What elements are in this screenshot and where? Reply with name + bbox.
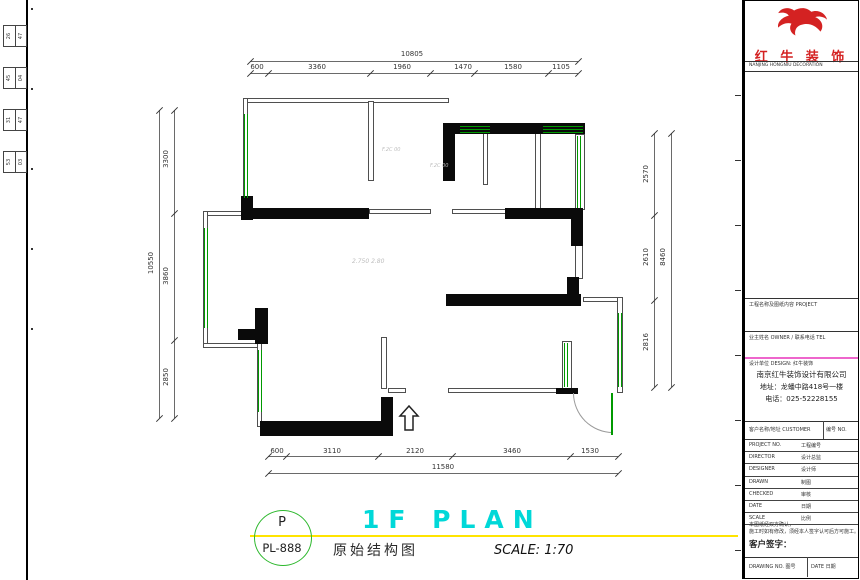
pink-divider-line bbox=[745, 357, 858, 359]
signature-strip-box: 2647 bbox=[3, 25, 27, 47]
window bbox=[543, 124, 583, 133]
dim-tick bbox=[575, 58, 582, 65]
wall bbox=[381, 337, 387, 389]
dim-label: 1530 bbox=[581, 447, 599, 455]
plan-title-cn: 原始结构图 bbox=[333, 540, 418, 560]
wall bbox=[575, 244, 583, 279]
binding-mark bbox=[31, 168, 33, 170]
wall bbox=[452, 209, 507, 214]
fold-mark bbox=[735, 160, 741, 161]
fold-mark bbox=[735, 225, 741, 226]
fold-mark bbox=[735, 485, 741, 486]
dim-label: 1470 bbox=[454, 63, 472, 71]
window bbox=[577, 136, 583, 208]
window bbox=[564, 343, 570, 387]
level-annotation: 2.750 2.80 bbox=[352, 258, 384, 265]
dim-tick bbox=[651, 384, 658, 391]
entrance-arrow-icon bbox=[398, 404, 420, 432]
bearing-wall bbox=[443, 123, 455, 181]
wall bbox=[203, 343, 262, 348]
binding-mark bbox=[31, 8, 33, 10]
title-block: 红 牛 装 饰 NANJING HONGNIU DECORATION 工程名称及… bbox=[742, 0, 859, 579]
wall bbox=[368, 101, 374, 181]
door-swing-arc bbox=[573, 393, 613, 433]
dim-line-left-segments bbox=[174, 110, 175, 418]
customer-signature-label: 客户签字： bbox=[749, 538, 792, 550]
wall bbox=[369, 209, 431, 214]
bearing-wall bbox=[381, 397, 393, 436]
title-block-row: DESIGNER设计师 bbox=[745, 464, 858, 476]
drawing-sheet: 2647450431475303 2.750 2.80 F.2C 00 bbox=[0, 0, 860, 580]
note-line: 本图纸经双方确认， bbox=[749, 521, 794, 528]
wall bbox=[243, 98, 449, 103]
bearing-wall bbox=[446, 294, 581, 306]
fold-mark bbox=[735, 290, 741, 291]
dim-line-top-total bbox=[250, 61, 578, 62]
dim-label: 3360 bbox=[308, 63, 326, 71]
dim-label: 3110 bbox=[323, 447, 341, 455]
dim-label: 2850 bbox=[162, 357, 170, 397]
fold-mark bbox=[735, 550, 741, 551]
bottom-row-left: DRAWING NO. 图号 bbox=[749, 563, 796, 570]
bearing-wall bbox=[260, 421, 388, 436]
dim-tick bbox=[171, 415, 178, 422]
binding-mark bbox=[31, 328, 33, 330]
title-block-row: PROJECT NO.工程编号 bbox=[745, 440, 858, 452]
dim-tick bbox=[575, 70, 582, 77]
dim-label: 1105 bbox=[552, 63, 570, 71]
dim-label: 2816 bbox=[642, 322, 650, 362]
signature-strip-box: 3147 bbox=[3, 109, 27, 131]
window bbox=[204, 228, 210, 328]
dim-line-right-segments bbox=[654, 133, 655, 387]
door-leaf bbox=[611, 393, 613, 435]
signature-strip-box: 4504 bbox=[3, 67, 27, 89]
title-block-row: DATE日期 bbox=[745, 501, 858, 513]
window bbox=[258, 350, 264, 412]
bull-logo-icon bbox=[769, 5, 835, 45]
title-block-row: CHECKED审核 bbox=[745, 489, 858, 501]
dim-label: 1960 bbox=[393, 63, 411, 71]
project-section-label: 工程名称及图纸内容 PROJECT bbox=[749, 301, 817, 308]
dim-line-right-total bbox=[671, 133, 672, 387]
dim-tick bbox=[615, 470, 622, 477]
dim-line-left-total bbox=[159, 110, 160, 418]
beam-annotation: F.2C 00 bbox=[382, 147, 400, 153]
company-address: 地址：龙蟠中路418号一楼 bbox=[745, 382, 858, 392]
wall bbox=[388, 388, 406, 393]
dim-label: 10550 bbox=[147, 243, 155, 283]
bottom-row-right: DATE 日期 bbox=[811, 563, 836, 570]
dim-label: 1580 bbox=[504, 63, 522, 71]
dim-label: 10805 bbox=[401, 50, 423, 58]
bearing-wall bbox=[241, 208, 369, 219]
dim-line-bottom-total bbox=[268, 473, 618, 474]
wall bbox=[583, 297, 621, 302]
dim-label: 3300 bbox=[162, 139, 170, 179]
dim-line-top-segments bbox=[250, 73, 578, 74]
dim-label: 2610 bbox=[642, 237, 650, 277]
dim-label: 2120 bbox=[406, 447, 424, 455]
note-line: 施工时如有修改，须经本人签字认可后方可施工。 bbox=[749, 528, 859, 535]
fold-mark bbox=[735, 95, 741, 96]
dim-tick bbox=[668, 384, 675, 391]
owner-section-label: 业主姓名 OWNER / 联系电话 TEL bbox=[749, 334, 825, 341]
fold-mark bbox=[735, 420, 741, 421]
dim-label: 600 bbox=[270, 447, 283, 455]
dim-tick bbox=[156, 415, 163, 422]
title-block-row: DIRECTOR设计总监 bbox=[745, 452, 858, 464]
company-name: 南京红牛装饰设计有限公司 bbox=[745, 369, 858, 380]
dim-tick bbox=[615, 453, 622, 460]
bearing-wall bbox=[571, 208, 583, 246]
wall bbox=[535, 133, 541, 211]
dim-label: 3860 bbox=[162, 256, 170, 296]
sheet-badge-letter: P bbox=[254, 515, 310, 530]
dim-line-bottom-segments bbox=[268, 456, 618, 457]
grid-header-left: 客户名称/地址 CUSTOMER bbox=[749, 426, 811, 433]
title-block-rows: PROJECT NO.工程编号DIRECTOR设计总监DESIGNER设计师DR… bbox=[745, 440, 858, 525]
beam-annotation: F.2C 00 bbox=[430, 163, 448, 169]
signature-strip-box: 5303 bbox=[3, 151, 27, 173]
wall bbox=[483, 133, 488, 185]
dim-label: 8460 bbox=[659, 237, 667, 277]
grid-header-right: 编号 NO. bbox=[826, 426, 847, 433]
company-caption: 设计单位 DESIGN: 红牛装饰 bbox=[749, 360, 813, 367]
footer-divider-line bbox=[250, 535, 738, 537]
fold-mark bbox=[735, 355, 741, 356]
window bbox=[460, 124, 490, 133]
title-block-row: DRAWN制图 bbox=[745, 477, 858, 489]
scale-label: SCALE: 1:70 bbox=[494, 543, 573, 558]
binding-mark bbox=[31, 248, 33, 250]
dim-label: 11580 bbox=[432, 463, 454, 471]
sheet-number: PL-888 bbox=[254, 541, 310, 555]
bearing-wall bbox=[238, 329, 268, 340]
dim-label: 3460 bbox=[503, 447, 521, 455]
company-phone: 电话：025-52228155 bbox=[745, 394, 858, 404]
binding-mark bbox=[31, 88, 33, 90]
brand-subline: NANJING HONGNIU DECORATION bbox=[749, 63, 823, 68]
plan-title-en: 1F PLAN bbox=[362, 505, 543, 534]
dim-label: 2570 bbox=[642, 154, 650, 194]
window bbox=[244, 114, 250, 198]
window bbox=[618, 313, 623, 387]
